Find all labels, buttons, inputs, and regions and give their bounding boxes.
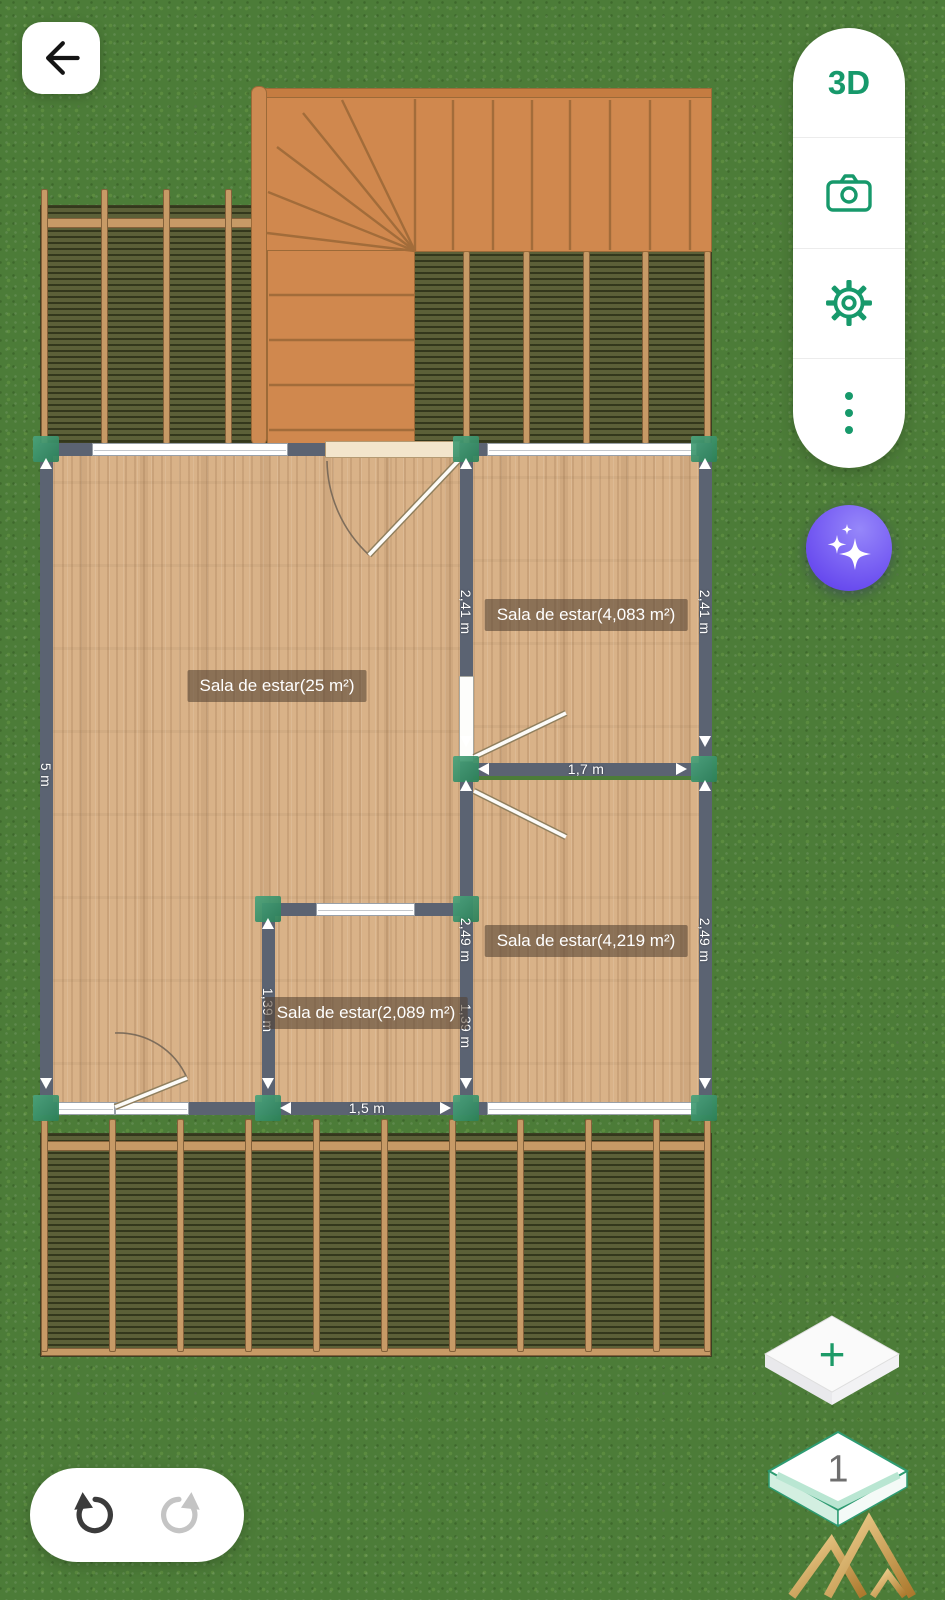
- dim-arrow: [699, 780, 711, 791]
- deck-post: [245, 1119, 252, 1352]
- bottom-deck[interactable]: [40, 1133, 712, 1357]
- window-top-left[interactable]: [92, 443, 288, 456]
- screenshot-button[interactable]: [793, 137, 905, 247]
- dim-arrow: [40, 458, 52, 469]
- wall-node[interactable]: [691, 756, 717, 782]
- staircase-lower-flight[interactable]: [267, 250, 415, 445]
- arrow-left-icon: [37, 34, 85, 82]
- redo-icon: [156, 1490, 206, 1540]
- deck-post: [463, 251, 470, 444]
- interior-door-opening[interactable]: [459, 676, 474, 762]
- deck-post: [704, 1119, 711, 1352]
- deck-post: [449, 1119, 456, 1352]
- dimension-label: 2,41 m: [697, 590, 713, 635]
- floor-planner-app: 5 m 2,41 m 2,41 m 2,49 m 2,49 m 1,39 m 1…: [0, 0, 945, 1600]
- deck-post: [653, 1119, 660, 1352]
- undo-button[interactable]: [68, 1490, 118, 1540]
- dim-arrow: [699, 458, 711, 469]
- deck-post: [177, 1119, 184, 1352]
- dim-arrow: [699, 736, 711, 747]
- view-3d-button[interactable]: 3D: [793, 28, 905, 137]
- dim-arrow: [460, 458, 472, 469]
- add-floor-label[interactable]: +: [819, 1327, 846, 1381]
- deck-post: [101, 189, 108, 444]
- dim-arrow: [460, 780, 472, 791]
- gear-icon: [825, 279, 873, 327]
- undo-icon: [68, 1490, 118, 1540]
- staircase-upper-flight[interactable]: [253, 88, 712, 252]
- dimension-label: 1,7 m: [568, 761, 605, 777]
- floor-1-label[interactable]: 1: [827, 1449, 848, 1492]
- window-bottom-right[interactable]: [487, 1102, 697, 1115]
- ai-assistant-button[interactable]: [806, 505, 892, 591]
- deck-post: [642, 251, 649, 444]
- wall-node[interactable]: [453, 1095, 479, 1121]
- deck-post: [517, 1119, 524, 1352]
- door-top[interactable]: [325, 441, 460, 458]
- dim-arrow: [280, 1102, 291, 1114]
- deck-rail: [41, 1348, 711, 1356]
- window-small-room[interactable]: [316, 903, 415, 916]
- room-label: Sala de estar(2,089 m²): [265, 997, 468, 1029]
- staircase-stringer: [251, 86, 267, 446]
- back-button[interactable]: [22, 22, 100, 94]
- ai-sparkles-icon: [822, 522, 876, 574]
- deck-post: [41, 189, 48, 444]
- window-bottom-left[interactable]: [57, 1102, 115, 1115]
- deck-post: [583, 251, 590, 444]
- dim-arrow: [262, 1078, 274, 1089]
- wall-node[interactable]: [691, 1095, 717, 1121]
- dim-arrow: [440, 1102, 451, 1114]
- watermark-logo: [778, 1506, 928, 1600]
- settings-button[interactable]: [793, 248, 905, 358]
- wall-node[interactable]: [255, 1095, 281, 1121]
- more-menu-button[interactable]: [793, 358, 905, 468]
- dimension-label: 2,49 m: [458, 918, 474, 963]
- dim-arrow: [699, 1078, 711, 1089]
- dim-arrow: [460, 736, 472, 747]
- view-3d-label: 3D: [828, 64, 870, 102]
- deck-rail: [41, 1141, 711, 1151]
- window-top-right[interactable]: [487, 443, 697, 456]
- dim-arrow: [40, 1078, 52, 1089]
- wall-node[interactable]: [33, 1095, 59, 1121]
- dim-arrow: [676, 763, 687, 775]
- room-label: Sala de estar(25 m²): [188, 670, 367, 702]
- history-controls: [30, 1468, 244, 1562]
- door-bottom[interactable]: [115, 1102, 189, 1115]
- dimension-label: 2,49 m: [697, 918, 713, 963]
- deck-post: [163, 189, 170, 444]
- deck-post: [381, 1119, 388, 1352]
- deck-post: [313, 1119, 320, 1352]
- dim-arrow: [460, 1078, 472, 1089]
- deck-post: [225, 189, 232, 444]
- dimension-label: 2,41 m: [458, 590, 474, 635]
- kebab-menu-icon: [842, 390, 856, 436]
- deck-post: [704, 251, 711, 444]
- deck-post: [523, 251, 530, 444]
- dimension-label: 5 m: [38, 763, 54, 787]
- staircase-top-rail: [253, 88, 712, 98]
- redo-button[interactable]: [156, 1490, 206, 1540]
- dim-arrow: [262, 918, 274, 929]
- camera-icon: [825, 172, 873, 214]
- room-label: Sala de estar(4,219 m²): [485, 925, 688, 957]
- deck-post: [41, 1119, 48, 1352]
- view-toolbar: 3D: [793, 28, 905, 468]
- deck-post: [585, 1119, 592, 1352]
- dim-arrow: [478, 763, 489, 775]
- dimension-label: 1,5 m: [349, 1100, 386, 1116]
- room-label: Sala de estar(4,083 m²): [485, 599, 688, 631]
- wall-node[interactable]: [453, 756, 479, 782]
- deck-post: [109, 1119, 116, 1352]
